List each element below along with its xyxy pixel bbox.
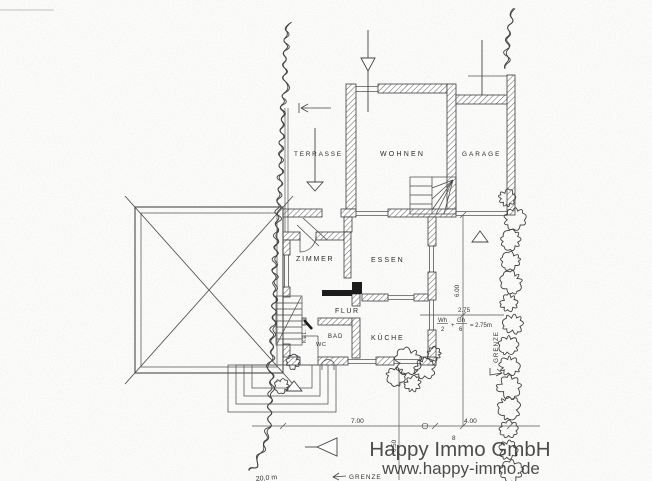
- room-label-flur: FLUR: [335, 308, 360, 315]
- room-label-wc: WC: [316, 342, 327, 348]
- room-label-keller-stairs: KEL.: [302, 329, 308, 343]
- formula-plus: +: [451, 323, 455, 329]
- room-label-terrasse: TERRASSE: [294, 151, 343, 158]
- floor-plan-svg: TERRASSE WOHNEN GARAGE ZIMMER ESSEN FLUR…: [0, 0, 652, 481]
- room-label-essen: ESSEN: [371, 257, 405, 264]
- room-label-bad: BAD: [328, 334, 343, 340]
- watermark-url: www.happy-immo.de: [381, 459, 540, 478]
- formula-num2: Gh: [457, 318, 465, 324]
- room-label-garage: GARAGE: [462, 151, 501, 158]
- formula-num1: Wh: [438, 318, 447, 324]
- formula-result: = 2.75m: [470, 323, 492, 329]
- watermark: Happy Immo GmbH www.happy-immo.de: [369, 438, 550, 478]
- watermark-company: Happy Immo GmbH: [369, 438, 550, 461]
- dim-7-00: 7.00: [351, 418, 364, 425]
- floor-plan-page: TERRASSE WOHNEN GARAGE ZIMMER ESSEN FLUR…: [0, 0, 652, 481]
- dim-6-00: 6.00: [454, 284, 461, 297]
- dim-cutoff: 20,0 m: [256, 474, 278, 481]
- dim-2-75: 2.75: [458, 307, 471, 314]
- room-label-zimmer: ZIMMER: [296, 256, 334, 263]
- grenze-right-label: GRENZE: [493, 331, 500, 363]
- paper-texture: [0, 0, 652, 481]
- room-label-wohnen: WOHNEN: [380, 151, 425, 158]
- grenze-bottom-label: GRENZE: [349, 474, 382, 481]
- dim-4-00: 4.00: [464, 418, 477, 425]
- room-label-kueche: KÜCHE: [371, 334, 405, 342]
